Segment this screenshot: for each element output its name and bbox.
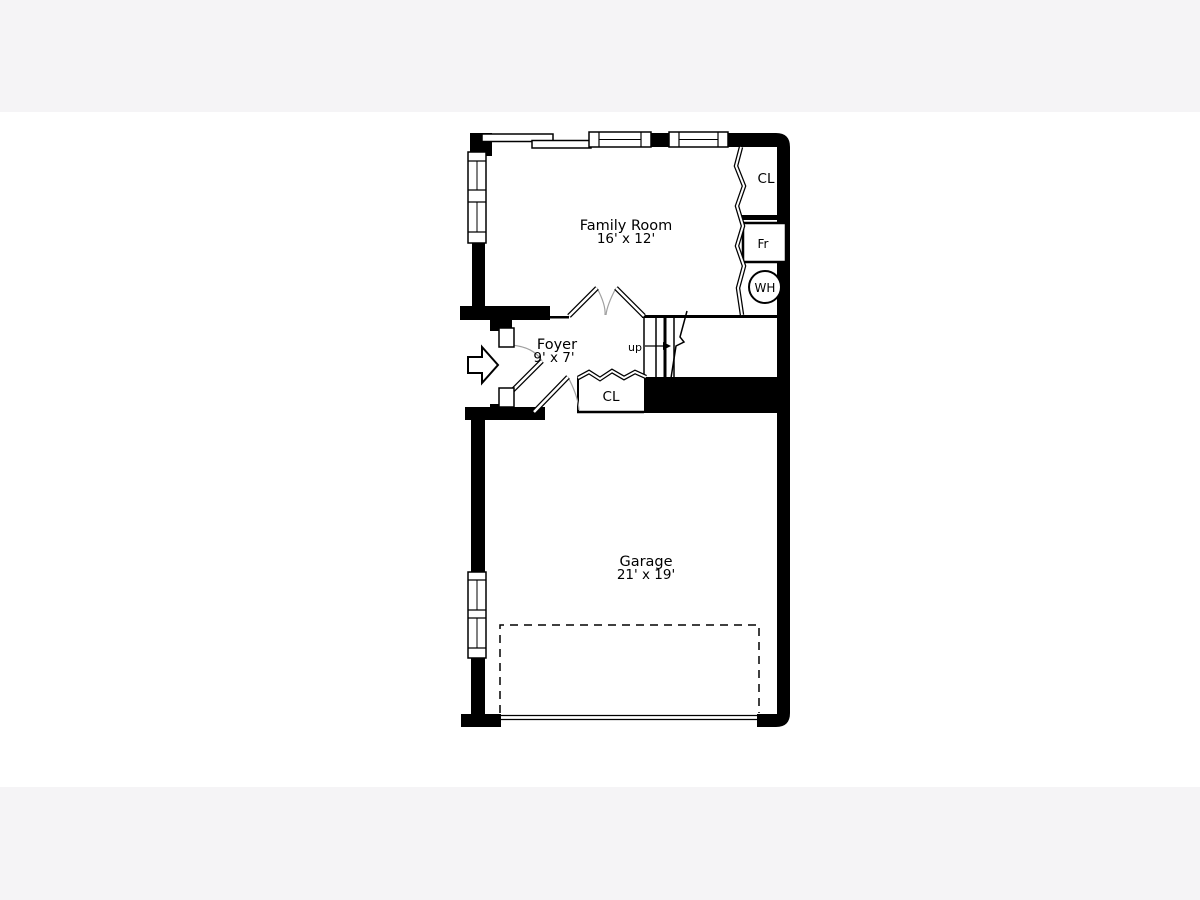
- foyer-dims: 9' x 7': [533, 350, 574, 366]
- top-window-left: [589, 132, 651, 147]
- upper-closet-label: CL: [758, 171, 775, 187]
- foyer-closet-label: CL: [603, 389, 620, 405]
- front-door: [499, 328, 542, 407]
- stairs-up-label: up: [628, 341, 642, 354]
- accordion-door: [736, 147, 744, 315]
- family-room-dims: 16' x 12': [597, 231, 655, 247]
- garage-entry-door: [534, 377, 579, 412]
- front-door-jamb-top: [499, 328, 514, 347]
- garage-side-window: [468, 572, 486, 658]
- family-room-side-window: [468, 152, 486, 243]
- front-door-jamb-bottom: [499, 388, 514, 407]
- water-heater-label: WH: [755, 281, 776, 295]
- top-half-wall-bars: [482, 134, 591, 148]
- garage-door: [500, 625, 759, 720]
- family-room-double-doors: [549, 288, 644, 319]
- entry-arrow-icon: [468, 347, 498, 383]
- stairs: [644, 311, 687, 378]
- top-window-right: [669, 132, 728, 147]
- garage-dims: 21' x 19': [617, 567, 675, 583]
- floor-plan-drawing: Family Room 16' x 12' Foyer 9' x 7' Gara…: [0, 0, 1200, 900]
- furnace-label: Fr: [758, 237, 769, 251]
- garage-door-dashed-outline: [500, 625, 759, 713]
- stair-landing-wall: [643, 377, 777, 413]
- floor-plan-sheet: Family Room 16' x 12' Foyer 9' x 7' Gara…: [0, 0, 1200, 900]
